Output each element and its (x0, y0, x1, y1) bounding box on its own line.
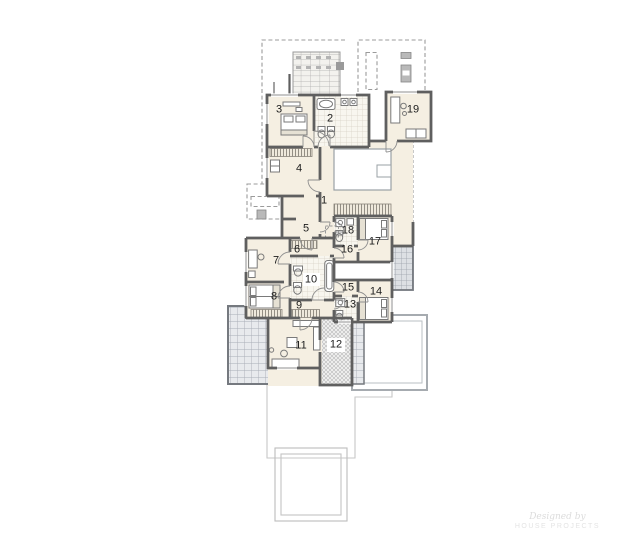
floor-plan-canvas: 1 2 3 4 5 6 7 8 9 10 11 12 13 14 15 16 1… (0, 0, 638, 556)
room-label-6: 6 (294, 245, 300, 256)
room-label-7: 7 (273, 256, 279, 267)
room-label-13: 13 (344, 300, 356, 311)
room-label-8: 8 (271, 292, 277, 303)
desk-icon (391, 97, 400, 123)
roof-dashed-right (358, 40, 425, 92)
room-label-4: 4 (296, 164, 302, 175)
room-label-12: 12 (330, 340, 342, 351)
room-label-5: 5 (303, 224, 309, 235)
watermark-line2: HOUSE PROJECTS (515, 523, 600, 530)
room-label-14: 14 (370, 287, 382, 298)
void-band (334, 262, 392, 280)
room-label-19: 19 (407, 105, 419, 116)
wardrobe-icon (251, 310, 282, 318)
wardrobe-icon (270, 149, 312, 157)
chimney-icon (257, 210, 266, 219)
room-label-18: 18 (342, 226, 354, 237)
watermark: Designed by HOUSE PROJECTS (515, 512, 600, 530)
room-label-17: 17 (369, 237, 381, 248)
bed-blanket (360, 219, 366, 240)
pillow (251, 287, 257, 296)
room-label-11: 11 (295, 341, 306, 352)
pergola (274, 52, 344, 96)
room-label-9: 9 (296, 301, 302, 312)
bed-blanket (281, 130, 307, 135)
pillow (284, 116, 293, 122)
balcony-tiles (392, 246, 413, 290)
void-small (377, 165, 391, 177)
pergola-post (336, 62, 344, 70)
skylight-dashed-slot (366, 53, 377, 90)
chimney-inner (403, 71, 410, 76)
pillow (251, 298, 257, 307)
flat-roof-inner (364, 321, 422, 383)
side-table-icon (249, 271, 256, 278)
sink-icon (341, 99, 348, 106)
room-label-3: 3 (276, 105, 282, 116)
room-label-15: 15 (342, 283, 354, 294)
nightstand-icon (296, 108, 302, 112)
pillow (296, 116, 305, 122)
pillow (382, 309, 387, 317)
watermark-line1: Designed by (515, 512, 600, 522)
pillow (382, 221, 387, 229)
sink-icon (350, 99, 357, 106)
room-label-10: 10 (305, 275, 317, 286)
room-label-16: 16 (341, 245, 353, 256)
floor-plan-drawing (0, 0, 638, 556)
pillow (382, 230, 387, 238)
lower-floor-footprint-line (267, 376, 392, 458)
pillow (382, 300, 387, 308)
bed-blanket (360, 298, 366, 320)
pool-outline-outer (275, 448, 347, 521)
desk-icon (249, 250, 258, 268)
shelf-icon (283, 102, 300, 106)
terrace-strip-tiles (352, 318, 364, 384)
sofa-icon (293, 321, 320, 327)
pool-outline-inner (281, 454, 341, 515)
chimney-icon (401, 53, 411, 59)
wardrobe-icon (334, 204, 391, 215)
lower-floor-outline (267, 376, 392, 521)
roof-dashed-subrect-inner (251, 197, 279, 207)
room-label-1: 1 (321, 196, 327, 207)
room-label-2: 2 (327, 114, 333, 125)
